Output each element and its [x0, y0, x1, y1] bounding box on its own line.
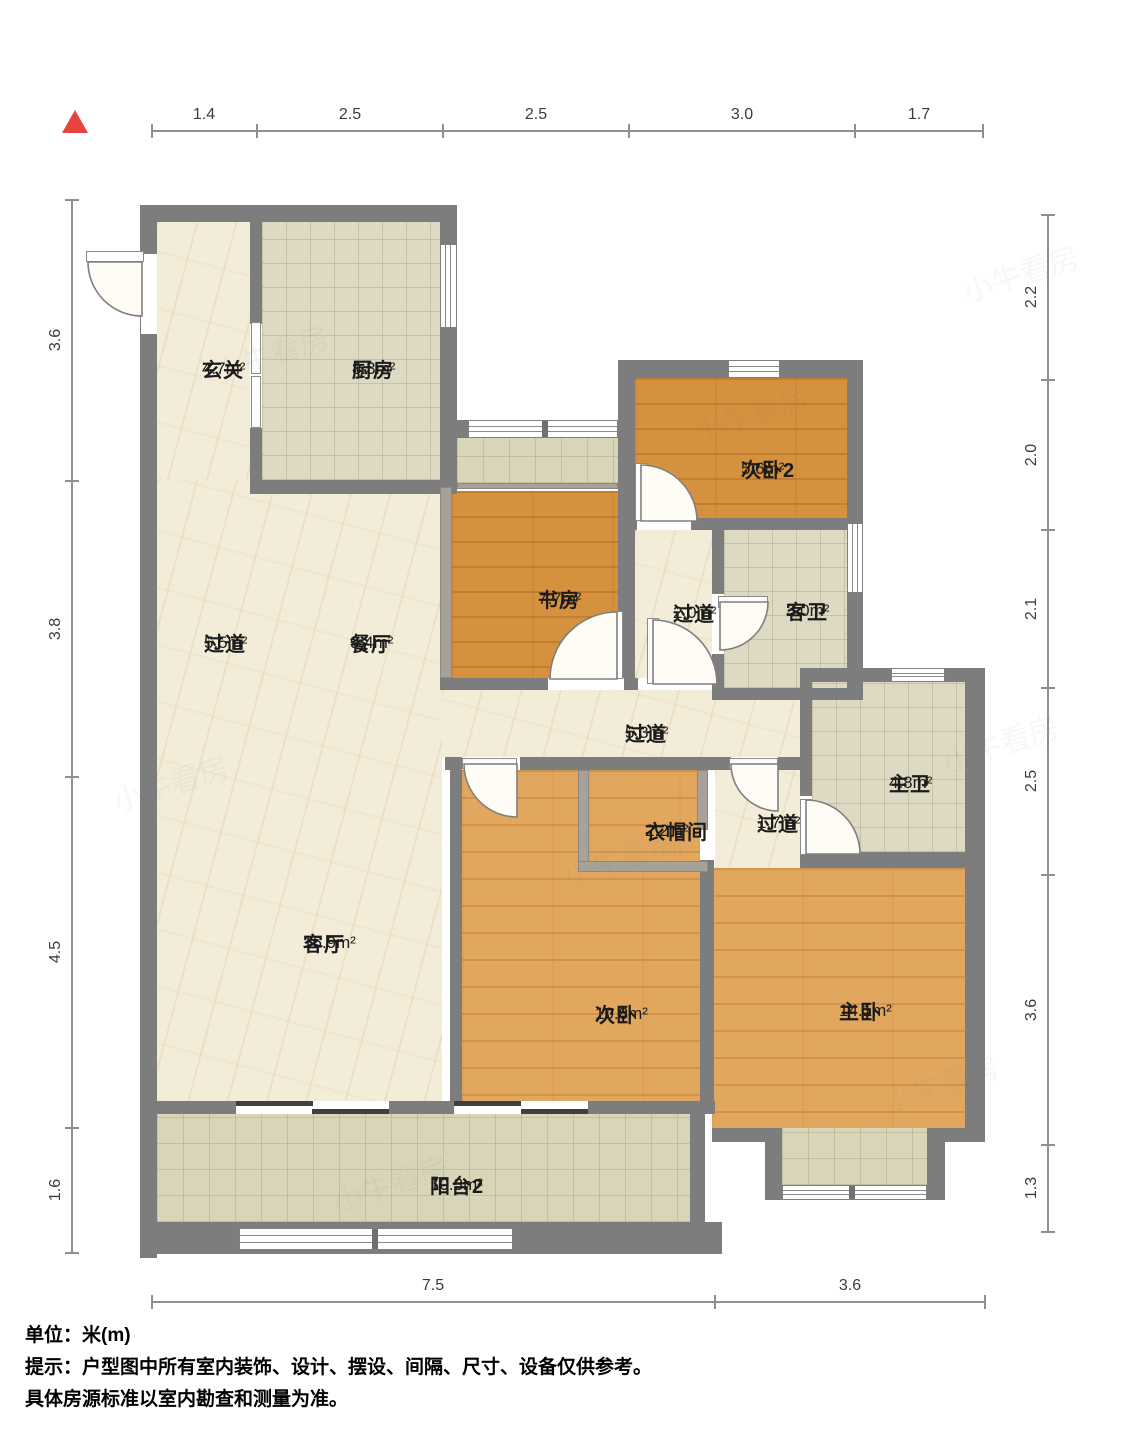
disclaimer-line1: 提示：户型图中所有室内装饰、设计、摆设、间隔、尺寸、设备仅供参考。	[25, 1352, 652, 1384]
room-area: 5.6m²	[741, 458, 784, 479]
room-area: 3.0m²	[786, 600, 829, 621]
room-area: 7.7m²	[538, 588, 581, 609]
room-area: 5.5m²	[204, 632, 247, 653]
room-area: 10.3m²	[430, 1174, 483, 1195]
room-area: 4.8m²	[889, 772, 932, 793]
unit-note: 单位：米(m)	[25, 1320, 652, 1352]
room-area: 2.2m²	[645, 820, 688, 841]
room-area: 5.3m²	[625, 722, 668, 743]
room-area: 8.3m²	[352, 358, 395, 379]
room-area: 1.7m²	[757, 812, 800, 833]
room-area: 16.9m²	[303, 932, 356, 953]
footer-notes: 单位：米(m) 提示：户型图中所有室内装饰、设计、摆设、间隔、尺寸、设备仅供参考…	[25, 1320, 652, 1416]
room-area: 4.7m²	[202, 358, 245, 379]
disclaimer-line2: 具体房源标准以室内勘查和测量为准。	[25, 1384, 652, 1416]
room-area: 14.1m²	[839, 1000, 892, 1021]
room-labels-layer: 玄关4.7m²厨房8.3m²次卧25.6m²书房7.7m²过道2.0m²客卫3.…	[0, 0, 1125, 1441]
room-area: 2.0m²	[673, 602, 716, 623]
room-area: 10.8m²	[595, 1003, 648, 1024]
room-area: 9.4m²	[350, 632, 393, 653]
floorplan-page: 小牛看房小牛看房小牛看房小牛看房小牛看房小牛看房小牛看房小牛看房 玄关4.7m²…	[0, 0, 1125, 1441]
